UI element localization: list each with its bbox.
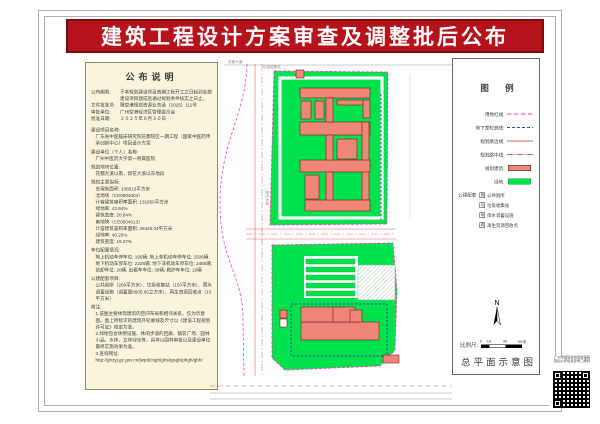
building (337, 139, 357, 159)
qr-block: 广州市规划和自然资源局 批后公布信息查询二维码 (549, 356, 595, 408)
legend-panel: 图 例 用地红线: 地下室轮廓线: 规划路边线: 规划路中线: (452, 58, 540, 375)
south-road (210, 386, 452, 399)
field-publish-period: 公布期限:于本规划建设项目首期工程开工之日起到全部建设项目建成后通过规划条件核实… (91, 89, 214, 102)
building (326, 172, 333, 200)
public-facilities-legend: 公建配套: 厕 公共厕所 垃 垃圾收集站 雨 雨水调蓄设施 (458, 190, 518, 230)
recycling-glyph: 再 (480, 222, 486, 228)
building (350, 310, 362, 322)
query-url: http://ghzyj.gz.gov.cn/jwpd/csgh/ghskgsg… (91, 357, 214, 364)
building (383, 355, 399, 363)
public-item-rainwater: 雨 雨水调蓄设施 (480, 210, 518, 220)
announcement-sections: 建设项目名称: 广东省中医临床研究院花都院区一期工程（国家中医药传承创新中心）项… (91, 127, 214, 363)
garbage-glyph: 垃 (480, 202, 486, 208)
qr-caption: 广州市规划和自然资源局 批后公布信息查询二维码 (549, 356, 595, 363)
section-main-indicators: 规划主要指标: 总用地面积: 108513平方米 北地块（CE0504004） … (91, 179, 214, 245)
green-space-swatch (507, 178, 533, 185)
middle-road (246, 229, 396, 239)
field-approval-date: 批准日期:２０２５年６月３０日 (91, 115, 214, 122)
section-project-name: 建设项目名称: 广东省中医临床研究院花都院区一期工程（国家中医药传承创新中心）项… (91, 127, 214, 147)
announcement-panel: 公布说明 公布期限:于本规划建设项目首期工程开工之日起到全部建设项目建成后通过规… (85, 62, 218, 390)
legend-item-site-redline: 用地红线: (453, 107, 537, 121)
building (301, 322, 379, 340)
section-public-facilities: 公建配套项目: 公共厕所（200平方米）、垃圾收集站（150平方米）、雨水调蓄设… (91, 276, 214, 302)
field-approval-unit: 审批单位:广州空港经济区管理委员会 (91, 109, 214, 116)
scale-bar-graphic: 0 10 30 50米 (481, 339, 531, 349)
building (337, 100, 363, 105)
building (326, 98, 333, 122)
public-item-garbage: 垃 垃圾收集站 (480, 200, 518, 210)
green-strip (306, 291, 355, 296)
building (301, 101, 311, 119)
building (305, 200, 370, 211)
building (300, 88, 370, 98)
legend-item-green-space: 绿地: (453, 175, 537, 189)
north-needle-light (497, 307, 501, 325)
building (280, 310, 287, 318)
legend-header: 图 例 (453, 81, 540, 94)
plan-title: 总平面示意图 (453, 355, 540, 369)
building (305, 175, 319, 199)
legend-inner: 图 例 用地红线: 地下室轮廓线: 规划路边线: 规划路中线: (453, 59, 540, 375)
section-parking: 车位配置情况: 地上机动车停车位: 195辆; 地上非机动车停车位: 2506辆… (91, 247, 214, 273)
building (300, 160, 370, 172)
building (300, 122, 370, 135)
public-item-recycling: 再 再生资源回收点 (480, 220, 518, 230)
site-plan-svg: 花都大道 新花大道 (210, 58, 452, 402)
south-parcel (272, 243, 399, 370)
west-road-redline (220, 64, 247, 376)
west-road: 新花大道 (220, 64, 270, 376)
scale-bar-segments (481, 345, 522, 349)
rainwater-glyph: 雨 (480, 212, 486, 218)
basement-outline-swatch (507, 124, 533, 131)
green-strip (306, 275, 355, 280)
page-title: 建筑工程设计方案审查及调整批后公布 (101, 21, 509, 51)
legend-items: 用地红线: 地下室轮廓线: 规划路边线: 规划路中线: 规划建筑: (453, 107, 537, 188)
qr-finder-bottomleft (553, 399, 562, 408)
facility-label: 垃圾收集站 (263, 64, 281, 69)
hatched-reserved-area (358, 265, 395, 300)
north-label: N (494, 300, 499, 307)
section-owner-name: 建设单位（个人）名称: 广州中医药大学第一附属医院 (91, 149, 214, 162)
road-center-swatch (507, 151, 533, 158)
section-plot-location: 规划地块位置: 花都大道以南，新花大道以东地段 (91, 164, 214, 177)
north-needle-dark (494, 307, 498, 325)
west-road-label: 新花大道 (265, 191, 270, 206)
announcement-header: 公布说明 (86, 70, 217, 83)
north-parcel: 垃圾收集站 (263, 64, 410, 225)
legend-item-road-center: 规划路中线: (453, 148, 537, 162)
facility-building (296, 70, 304, 78)
announcement-poster: 建筑工程设计方案审查及调整批后公布 公布说明 公布期限:于本规划建设项目首期工程… (0, 0, 600, 424)
building (363, 100, 370, 118)
qr-finder-topleft (553, 371, 562, 380)
public-facility-items: 厕 公共厕所 垃 垃圾收集站 雨 雨水调蓄设施 再 再生资源回收点 (480, 190, 518, 230)
legend-item-planned-building: 规划建筑: (453, 161, 537, 175)
legend-item-road-edge: 规划路边线: (453, 134, 537, 148)
legend-item-basement-outline: 地下室轮廓线: (453, 121, 537, 135)
scale-bar: 比例尺: 0 10 30 50米 (460, 339, 531, 349)
green-strip (306, 267, 355, 272)
green-strip (306, 283, 355, 288)
north-road-label: 花都大道 (228, 59, 243, 64)
building (315, 101, 324, 119)
announcement-body: 公布期限:于本规划建设项目首期工程开工之日起到全部建设项目建成后通过规划条件核实… (91, 89, 214, 363)
public-item-toilet: 厕 公共厕所 (480, 190, 518, 200)
site-redline-swatch (507, 110, 533, 117)
qr-code (553, 371, 590, 408)
toilet-glyph: 厕 (480, 192, 486, 198)
north-arrow: N (487, 298, 507, 331)
building (326, 135, 333, 160)
planned-building-swatch (507, 164, 533, 171)
road-edge-swatch (507, 137, 533, 144)
qr-finder-topright (581, 371, 590, 380)
title-banner: 建筑工程设计方案审查及调整批后公布 (66, 19, 544, 53)
building (280, 319, 287, 327)
green-strip (306, 259, 355, 264)
section-notes: 附注: 1.该图主要体现建筑的空间布局和相邻关系，仅为示意图。图上所标识的建筑外… (91, 304, 214, 363)
